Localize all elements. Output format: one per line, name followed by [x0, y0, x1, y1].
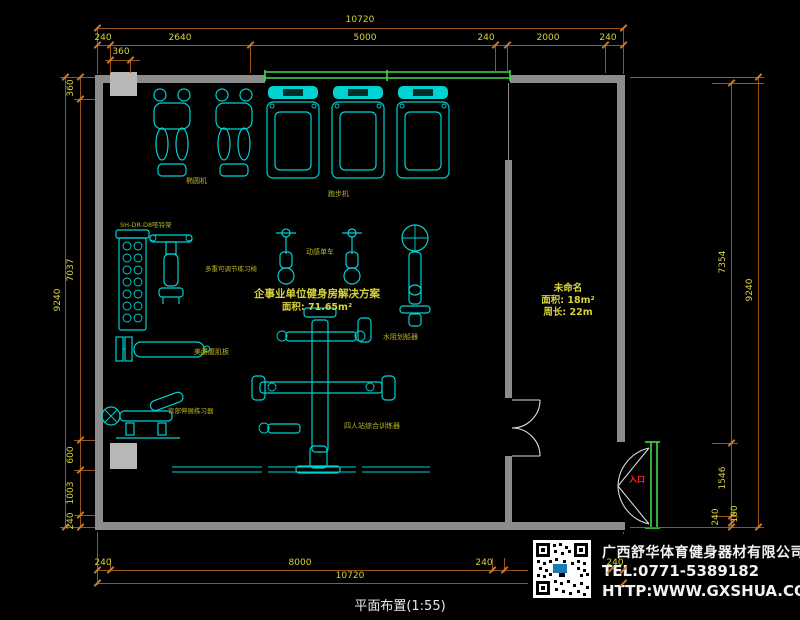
dim-line — [97, 45, 623, 46]
dim-bottom-seg: 240 — [469, 558, 499, 568]
dim-line — [80, 77, 81, 527]
dim-top-overall: 10720 — [330, 15, 390, 25]
dim-ext — [130, 60, 131, 73]
side-room-perimeter: 周长: 22m — [513, 307, 623, 318]
rowing-machine — [400, 225, 430, 326]
treadmill — [397, 86, 449, 178]
elliptical-machine — [216, 89, 252, 176]
dim-right-overall: 9240 — [745, 268, 755, 312]
dim-ext — [250, 46, 251, 73]
dim-line — [97, 28, 623, 29]
side-room-name: 未命名 — [513, 283, 623, 294]
window-strip — [265, 70, 510, 81]
dim-line — [731, 83, 732, 527]
dumbbell-rack — [116, 230, 149, 330]
dim-top-sub: 360 — [101, 47, 141, 57]
dim-left-seg: 360 — [66, 66, 76, 110]
dim-bottom-seg: 240 — [88, 558, 118, 568]
main-room-area: 面积: 71.65m² — [232, 299, 402, 313]
dim-ext — [495, 46, 496, 73]
dim-ext — [630, 527, 764, 528]
dim-line — [758, 77, 759, 527]
dim-ext — [712, 443, 738, 444]
label-multi-trainer: 四人站综合训练器 — [344, 422, 400, 430]
dim-ext — [630, 77, 764, 78]
treadmill — [267, 86, 319, 178]
drawing-title: 平面布置(1:55) — [320, 595, 480, 614]
dim-bottom-seg: 240 — [600, 558, 630, 568]
double-door — [512, 400, 540, 456]
dim-top-seg: 240 — [471, 33, 501, 43]
entrance-label: 入口 — [622, 474, 652, 485]
dim-top-seg: 240 — [593, 33, 623, 43]
dim-bottom-seg: 8000 — [270, 558, 330, 568]
label-adjustable-bench: 多重可调节练习椅 — [205, 265, 257, 273]
treadmill — [332, 86, 384, 178]
company-name: 广西舒华体育健身器材有限公司 — [602, 542, 800, 562]
label-spin-bike: 动感单车 — [306, 248, 334, 256]
label-elliptical: 椭圆机 — [186, 177, 207, 185]
spin-bike — [276, 229, 296, 284]
dim-right-seg: 7354 — [718, 240, 728, 284]
dim-top-seg: 5000 — [335, 33, 395, 43]
entrance-door — [618, 442, 660, 528]
dim-ext — [507, 46, 508, 73]
label-back-trainer: 背部伸展练习器 — [168, 407, 214, 415]
label-dumbbell-rack: SH-DR-D8哑铃架 — [120, 221, 172, 229]
multi-station-trainer — [252, 308, 395, 473]
dim-bottom-overall: 10720 — [320, 571, 380, 581]
dim-right-seg: 1546 — [718, 456, 728, 500]
dim-ext — [712, 83, 764, 84]
floor-mats — [172, 467, 430, 472]
qr-code — [533, 540, 591, 598]
company-website: HTTP:WWW.GXSHUA.COM — [602, 582, 800, 600]
dim-left-seg: 7037 — [66, 248, 76, 292]
dim-ext — [605, 46, 606, 73]
dim-left-overall: 9240 — [53, 278, 63, 322]
dim-top-seg: 2000 — [518, 33, 578, 43]
adjustable-bench — [150, 235, 192, 304]
label-ab-board: 美腰腹肌板 — [194, 348, 229, 356]
dim-top-seg: 2640 — [150, 33, 210, 43]
dim-right-seg: 100 — [730, 492, 740, 536]
floor-plan-canvas: 10720 240 2640 5000 240 2000 240 360 924… — [0, 0, 800, 620]
spin-bike — [342, 229, 362, 284]
label-rower: 水阻划船器 — [383, 333, 418, 341]
company-info-block: 广西舒华体育健身器材有限公司 TEL:0771-5389182 HTTP:WWW… — [528, 534, 800, 610]
qr-logo — [553, 564, 567, 573]
side-room-area: 面积: 18m² — [513, 295, 623, 306]
dim-right-seg: 240 — [711, 495, 721, 539]
dim-ext — [623, 28, 624, 74]
label-treadmill: 跑步机 — [328, 190, 349, 198]
dim-top-seg: 240 — [88, 33, 118, 43]
dim-left-seg: 240 — [66, 499, 76, 543]
elliptical-machine — [154, 89, 190, 176]
